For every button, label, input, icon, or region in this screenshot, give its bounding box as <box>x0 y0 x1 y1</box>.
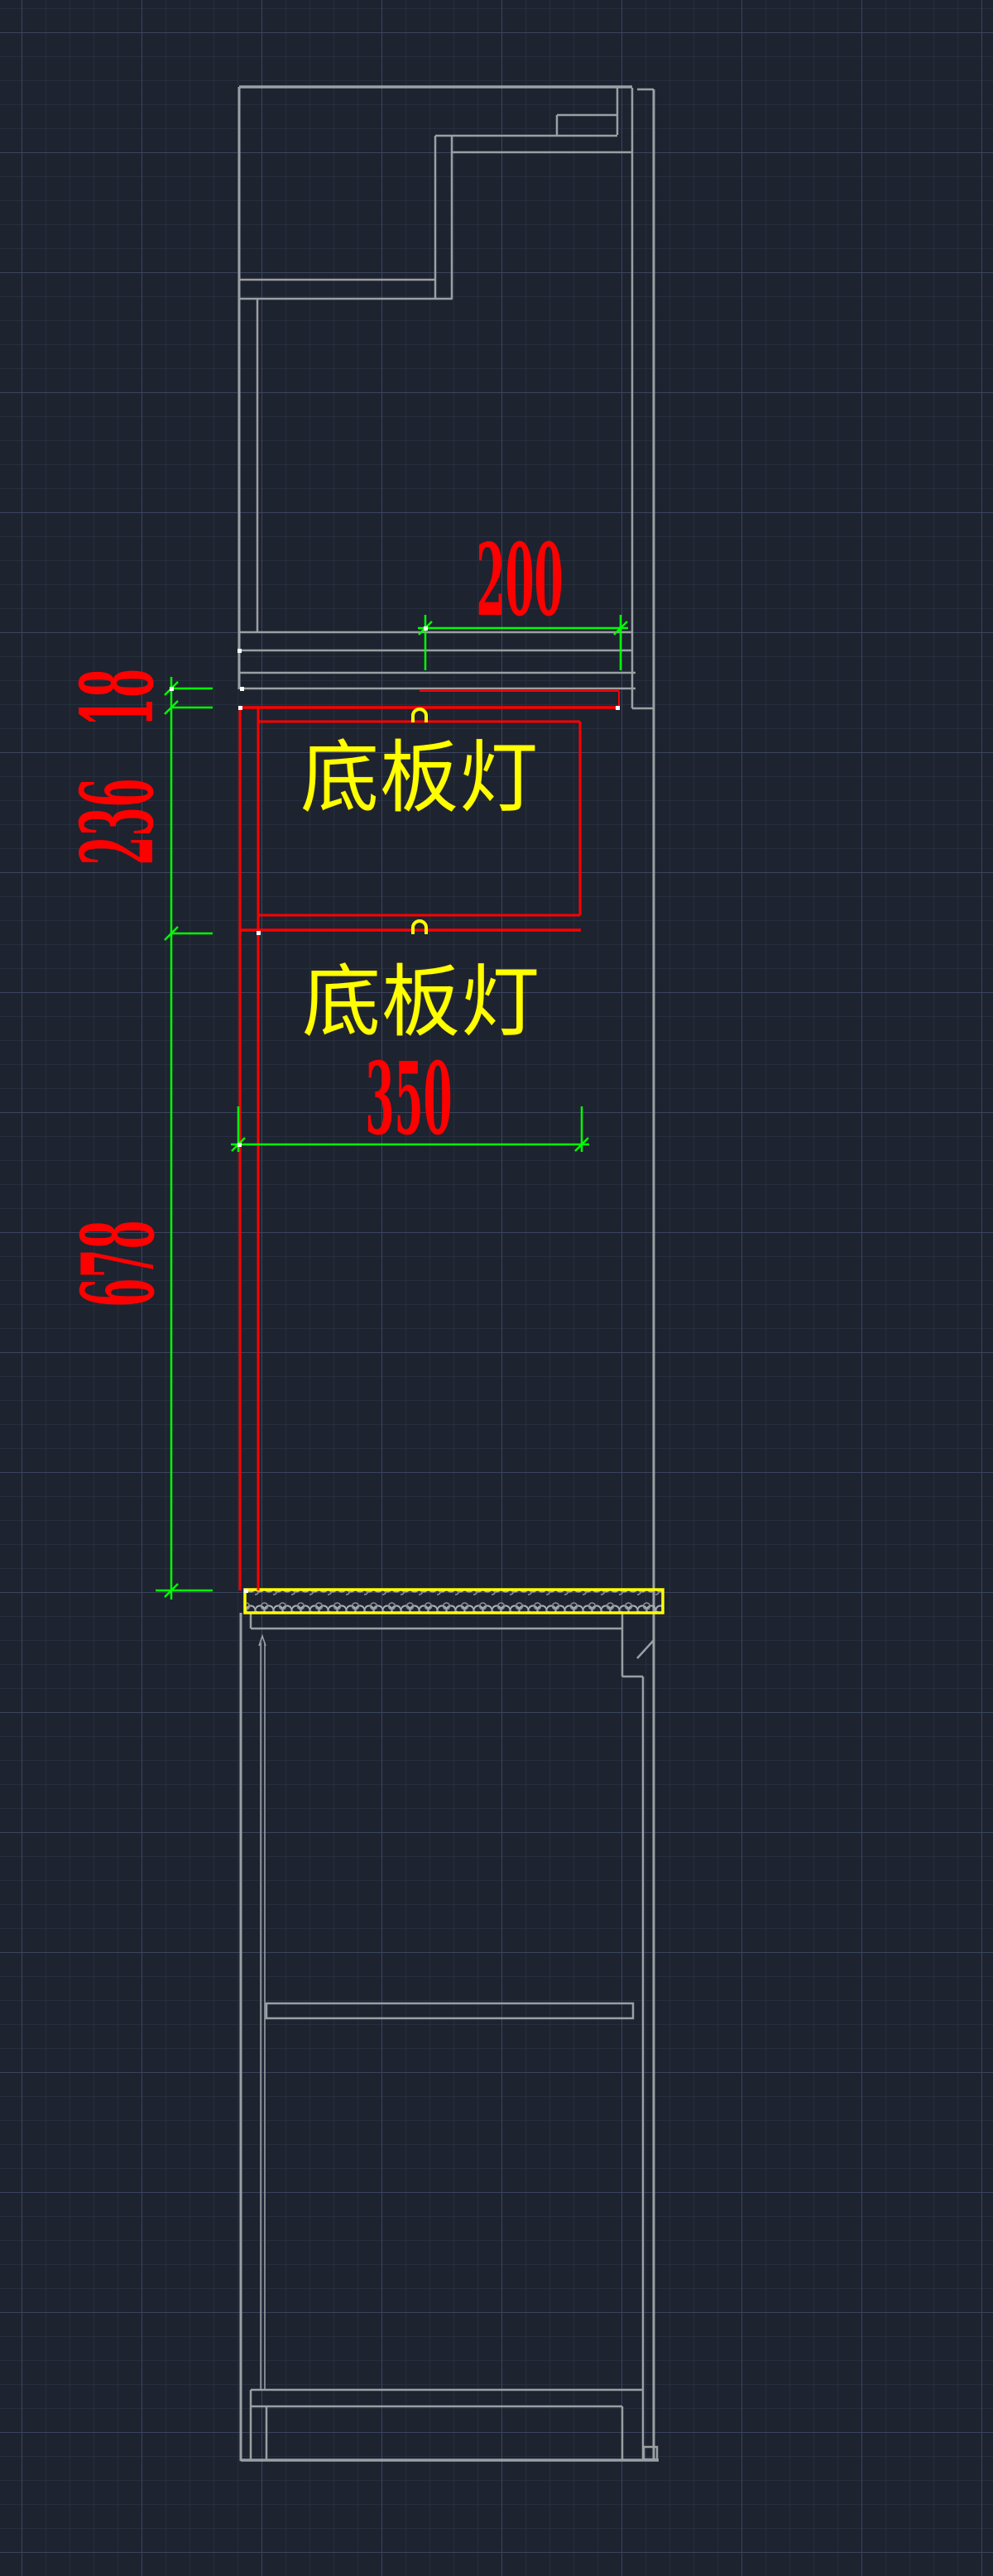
dimension-text-18[interactable]: 18 <box>69 669 168 727</box>
cad-canvas[interactable]: 200 18 236 350 678 底板灯 底板灯 <box>0 0 993 2576</box>
label-bottom-panel-light-1[interactable]: 底板灯 <box>300 740 539 818</box>
lower-cabinet-lines[interactable] <box>241 1613 659 2461</box>
dimension-text-678[interactable]: 678 <box>70 1220 169 1307</box>
upper-cabinet-lines[interactable] <box>239 87 654 2461</box>
label-bottom-panel-light-2[interactable]: 底板灯 <box>302 964 540 1043</box>
dimension-text-200[interactable]: 200 <box>476 531 563 631</box>
hatched-board[interactable] <box>245 1590 663 1613</box>
dimension-text-236[interactable]: 236 <box>69 778 168 865</box>
dimension-text-350[interactable]: 350 <box>365 1050 452 1149</box>
